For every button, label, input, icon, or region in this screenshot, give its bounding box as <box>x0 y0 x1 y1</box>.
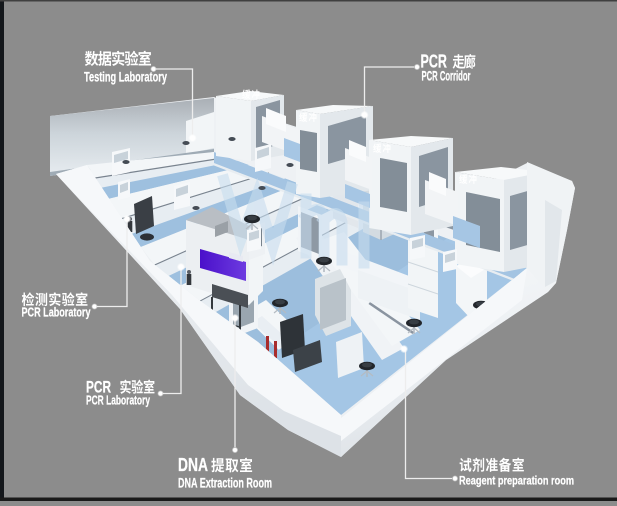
svg-text:Testing Laboratory: Testing Laboratory <box>84 69 167 85</box>
svg-text:PCR Laboratory: PCR Laboratory <box>22 305 92 320</box>
svg-text:PCR Corridor: PCR Corridor <box>422 68 471 84</box>
svg-text:DNA: DNA <box>178 455 208 475</box>
svg-text:Reagent preparation room: Reagent preparation room <box>459 474 574 488</box>
svg-text:DNA Extraction Room: DNA Extraction Room <box>178 476 272 491</box>
svg-text:PCR Laboratory: PCR Laboratory <box>86 394 150 408</box>
